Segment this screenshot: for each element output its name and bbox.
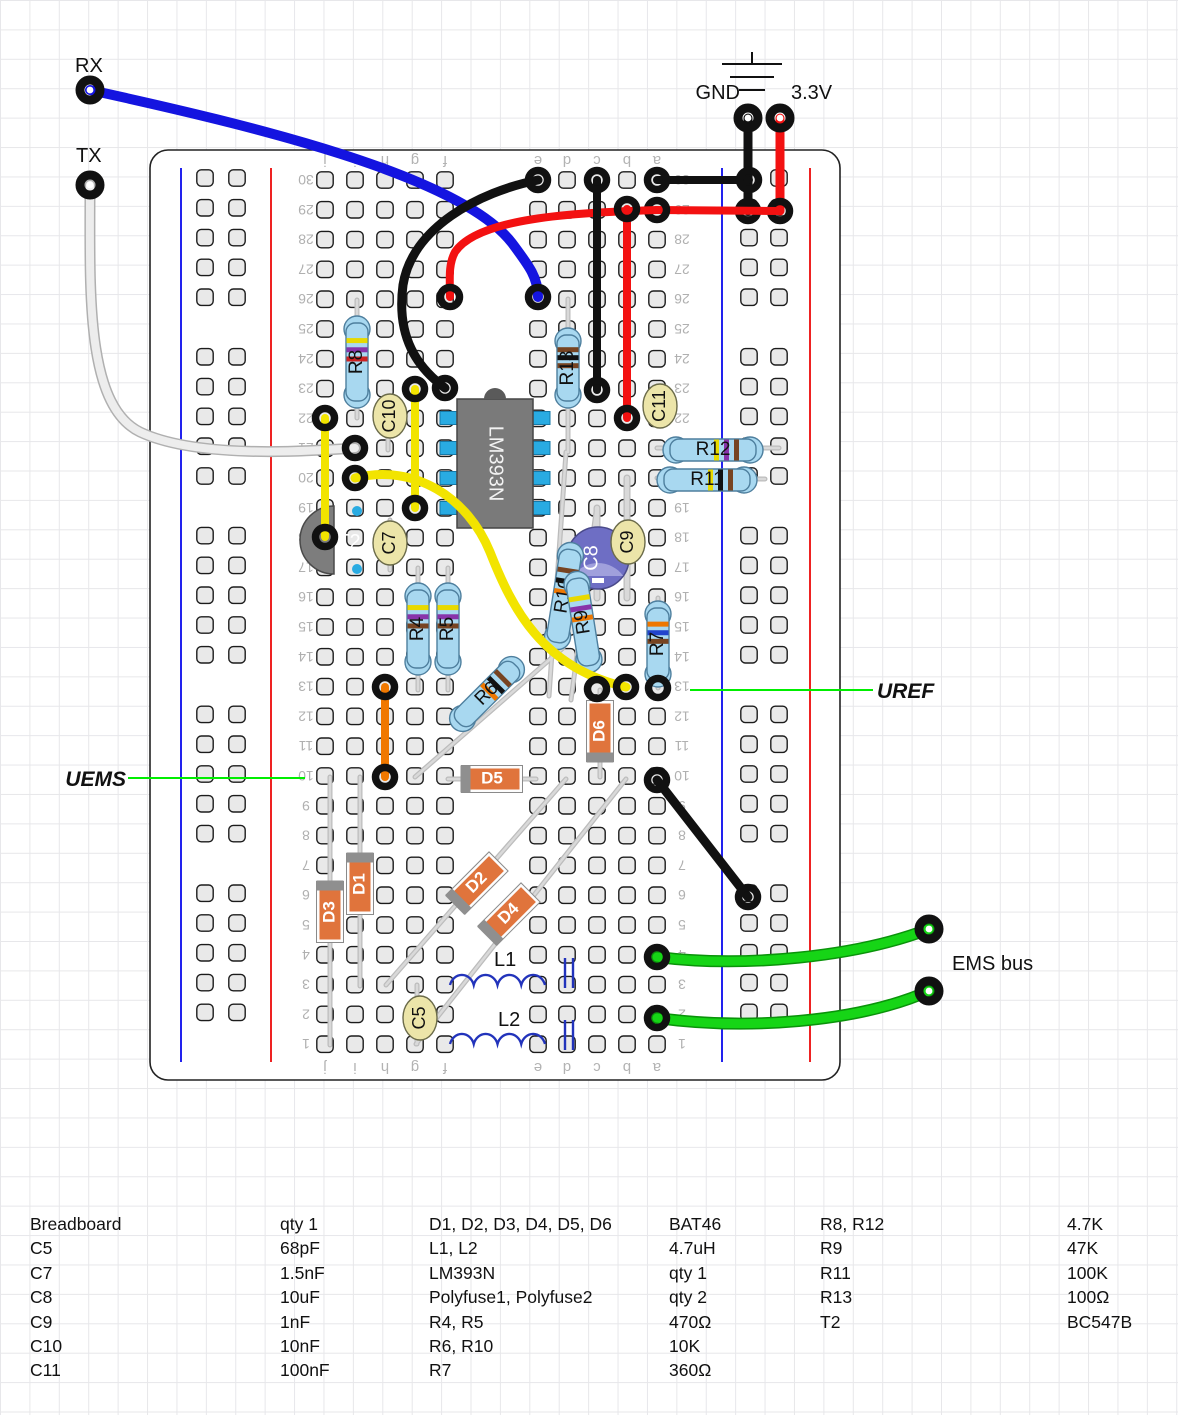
breadboard-hole <box>437 559 453 575</box>
breadboard-hole <box>771 974 787 990</box>
breadboard-hole <box>197 408 213 424</box>
breadboard-hole <box>317 649 333 665</box>
breadboard-hole <box>589 1006 605 1022</box>
breadboard-hole <box>559 172 575 188</box>
component-D1[interactable]: D1 <box>347 853 374 915</box>
row-number: 8 <box>302 828 310 844</box>
component-D3[interactable]: D3 <box>317 881 344 943</box>
gnd-label: GND <box>696 82 740 104</box>
breadboard-hole <box>377 1036 393 1052</box>
breadboard-hole <box>197 468 213 484</box>
breadboard-hole <box>649 351 665 367</box>
breadboard-hole <box>771 915 787 931</box>
row-number: 8 <box>678 828 686 844</box>
breadboard-hole <box>197 825 213 841</box>
breadboard-hole <box>530 529 546 545</box>
resistor-label: R13 <box>557 351 578 386</box>
breadboard-hole <box>559 827 575 843</box>
resistor-band <box>347 338 368 343</box>
diode-label: D6 <box>589 720 608 742</box>
cap-label: C11 <box>649 390 669 422</box>
row-number: 17 <box>674 559 690 575</box>
uref-label: UREF <box>877 680 935 703</box>
row-number: 19 <box>674 500 690 516</box>
breadboard-hole <box>197 706 213 722</box>
row-number: 27 <box>674 261 690 277</box>
breadboard-hole <box>197 587 213 603</box>
breadboard-hole <box>530 678 546 694</box>
row-number: 14 <box>298 649 314 665</box>
breadboard-hole <box>530 827 546 843</box>
component-C11[interactable]: C11 <box>643 384 677 428</box>
breadboard-hole <box>649 917 665 933</box>
breadboard-hole <box>437 529 453 545</box>
breadboard-hole <box>317 291 333 307</box>
row-number: 26 <box>674 291 690 307</box>
breadboard-hole <box>377 917 393 933</box>
breadboard-hole <box>589 917 605 933</box>
breadboard-hole <box>229 796 245 812</box>
breadboard-hole <box>559 887 575 903</box>
breadboard-hole <box>317 231 333 247</box>
breadboard-hole <box>229 408 245 424</box>
transistor-pin <box>352 564 362 574</box>
breadboard-hole <box>741 378 757 394</box>
breadboard-hole <box>377 827 393 843</box>
breadboard-hole <box>407 708 423 724</box>
row-number: 3 <box>678 977 686 993</box>
tx-label: TX <box>76 145 102 167</box>
breadboard-hole <box>377 291 393 307</box>
breadboard-hole <box>589 857 605 873</box>
component-R13[interactable]: R13 <box>555 328 581 408</box>
diode-label: D5 <box>481 768 503 787</box>
breadboard-hole <box>197 766 213 782</box>
resistor-label: R9 <box>570 608 595 635</box>
row-number: 9 <box>302 798 310 814</box>
breadboard-hole <box>589 827 605 843</box>
diode-cathode-stripe <box>587 753 614 763</box>
breadboard-hole <box>347 649 363 665</box>
breadboard-hole <box>741 617 757 633</box>
row-number: 1 <box>302 1036 310 1052</box>
breadboard-hole <box>771 527 787 543</box>
breadboard-hole <box>589 976 605 992</box>
breadboard-hole <box>407 559 423 575</box>
breadboard-hole <box>229 200 245 216</box>
row-number: 28 <box>298 232 314 248</box>
breadboard-hole <box>530 231 546 247</box>
breadboard-hole <box>741 825 757 841</box>
breadboard-hole <box>771 736 787 752</box>
row-number: 10 <box>674 768 690 784</box>
row-number: 25 <box>298 321 314 337</box>
breadboard-hole <box>197 647 213 663</box>
row-number: 13 <box>674 679 690 695</box>
row-number: 4 <box>302 947 310 963</box>
row-number: 3 <box>302 977 310 993</box>
breadboard-hole <box>437 172 453 188</box>
resistor-band <box>408 605 429 610</box>
breadboard-hole <box>771 766 787 782</box>
pin-ems2[interactable] <box>919 981 939 1001</box>
breadboard-hole <box>229 974 245 990</box>
breadboard-hole <box>741 259 757 275</box>
breadboard-hole <box>377 321 393 337</box>
breadboard-hole <box>619 887 635 903</box>
column-letter: b <box>623 1059 631 1076</box>
breadboard-hole <box>771 557 787 573</box>
breadboard-hole <box>437 351 453 367</box>
breadboard-hole <box>649 798 665 814</box>
component-R5[interactable]: R5 <box>435 583 461 675</box>
component-R12[interactable]: R12 <box>663 437 763 463</box>
breadboard-hole <box>530 857 546 873</box>
pin-v33[interactable] <box>770 108 790 128</box>
breadboard-hole <box>347 202 363 218</box>
breadboard-hole <box>197 378 213 394</box>
breadboard-hole <box>649 708 665 724</box>
breadboard-hole <box>407 678 423 694</box>
breadboard-hole <box>317 619 333 635</box>
row-number: 15 <box>298 619 314 635</box>
breadboard-hole <box>317 738 333 754</box>
pin-hole <box>926 926 933 933</box>
breadboard-hole <box>619 440 635 456</box>
breadboard-hole <box>407 827 423 843</box>
breadboard-hole <box>197 557 213 573</box>
diode-label: D1 <box>349 873 368 895</box>
breadboard-hole <box>407 529 423 545</box>
pin-tx[interactable] <box>80 175 100 195</box>
breadboard-hole <box>229 527 245 543</box>
row-number: 20 <box>298 470 314 486</box>
breadboard-hole <box>197 974 213 990</box>
breadboard-hole <box>197 945 213 961</box>
breadboard-hole <box>649 738 665 754</box>
component-R7[interactable]: R7 <box>645 601 671 687</box>
breadboard-hole <box>771 796 787 812</box>
breadboard-hole <box>619 947 635 963</box>
row-number: 28 <box>674 232 690 248</box>
component-R8[interactable]: R8 <box>344 316 370 408</box>
row-number: 14 <box>674 649 690 665</box>
breadboard-hole <box>197 617 213 633</box>
resistor-band <box>728 470 733 491</box>
column-letter: c <box>593 152 601 169</box>
ems-bus-label: EMS bus <box>952 953 1033 975</box>
row-number: 12 <box>674 708 690 724</box>
cap-label: C10 <box>379 399 399 432</box>
breadboard-hole <box>530 947 546 963</box>
row-number: 16 <box>674 589 690 605</box>
breadboard-hole <box>347 1006 363 1022</box>
diode-cathode-stripe <box>461 766 471 793</box>
breadboard-hole <box>741 766 757 782</box>
breadboard-hole <box>377 798 393 814</box>
breadboard-hole <box>530 738 546 754</box>
breadboard-hole <box>407 798 423 814</box>
breadboard-hole <box>377 649 393 665</box>
breadboard-hole <box>771 617 787 633</box>
breadboard-hole <box>197 736 213 752</box>
pin-hole <box>745 115 752 122</box>
breadboard-hole <box>530 589 546 605</box>
pin-hole <box>87 87 94 94</box>
column-letter: e <box>534 1059 542 1076</box>
breadboard-hole <box>771 825 787 841</box>
row-number: 24 <box>674 351 690 367</box>
rx-label: RX <box>75 55 103 77</box>
breadboard-hole <box>229 587 245 603</box>
breadboard-hole <box>437 321 453 337</box>
row-number: 23 <box>298 381 314 397</box>
breadboard-hole <box>347 261 363 277</box>
breadboard-hole <box>619 649 635 665</box>
breadboard-hole <box>530 917 546 933</box>
component-R11[interactable]: R11 <box>657 467 757 493</box>
row-number: 10 <box>298 768 314 784</box>
breadboard-hole <box>229 557 245 573</box>
breadboard-hole <box>197 885 213 901</box>
breadboard-hole <box>197 527 213 543</box>
breadboard-hole <box>589 947 605 963</box>
row-number: 24 <box>298 351 314 367</box>
breadboard-hole <box>377 1006 393 1022</box>
cap-label: C7 <box>379 531 399 554</box>
breadboard-hole <box>347 1036 363 1052</box>
breadboard-hole <box>649 827 665 843</box>
breadboard-hole <box>317 172 333 188</box>
breadboard-hole <box>377 202 393 218</box>
cap-label: C9 <box>617 530 637 553</box>
resistor-band <box>648 622 669 627</box>
diode-cathode-stripe <box>347 853 374 863</box>
breadboard-hole <box>347 619 363 635</box>
breadboard-hole <box>649 1036 665 1052</box>
row-number: 25 <box>674 321 690 337</box>
breadboard-hole <box>619 1036 635 1052</box>
breadboard-hole <box>530 1006 546 1022</box>
row-number: 13 <box>298 679 314 695</box>
breadboard-hole <box>197 796 213 812</box>
breadboard-hole <box>649 559 665 575</box>
breadboard-hole <box>197 915 213 931</box>
breadboard-hole <box>317 380 333 396</box>
breadboard-hole <box>377 887 393 903</box>
resistor-label: R8 <box>346 350 367 374</box>
v33-label: 3.3V <box>791 82 833 104</box>
breadboard-hole <box>771 229 787 245</box>
ic-label: LM393N <box>485 426 507 502</box>
component-C5[interactable]: C5 <box>403 996 437 1040</box>
breadboard-hole <box>229 617 245 633</box>
breadboard-hole <box>741 706 757 722</box>
breadboard-hole <box>771 349 787 365</box>
breadboard-hole <box>589 440 605 456</box>
diode-cathode-stripe <box>317 881 344 891</box>
breadboard-hole <box>559 917 575 933</box>
breadboard-hole <box>619 619 635 635</box>
row-number: 6 <box>678 887 686 903</box>
breadboard-hole <box>229 378 245 394</box>
row-number: 7 <box>678 857 686 873</box>
breadboard-hole <box>229 706 245 722</box>
breadboard-hole <box>437 768 453 784</box>
breadboard-hole <box>437 857 453 873</box>
row-number: 27 <box>298 261 314 277</box>
component-C7[interactable]: C7 <box>373 521 407 565</box>
breadboard-hole <box>197 200 213 216</box>
breadboard-hole <box>741 408 757 424</box>
breadboard-hole <box>229 766 245 782</box>
column-letter: c <box>593 1059 601 1076</box>
breadboard-hole <box>229 289 245 305</box>
breadboard-hole <box>771 289 787 305</box>
row-number: 19 <box>298 500 314 516</box>
breadboard-hole <box>229 647 245 663</box>
breadboard-hole <box>741 289 757 305</box>
component-C9[interactable]: C9 <box>611 520 645 564</box>
breadboard-hole <box>197 1004 213 1020</box>
breadboard-hole <box>559 738 575 754</box>
breadboard-hole <box>377 440 393 456</box>
breadboard-hole <box>771 408 787 424</box>
breadboard-hole <box>649 291 665 307</box>
breadboard-hole <box>530 768 546 784</box>
pin-ems1[interactable] <box>919 919 939 939</box>
breadboard-hole <box>530 321 546 337</box>
breadboard-hole <box>741 915 757 931</box>
breadboard-hole <box>741 527 757 543</box>
breadboard-hole <box>589 470 605 486</box>
breadboard-hole <box>377 351 393 367</box>
row-number: 29 <box>298 202 314 218</box>
breadboard-hole <box>771 706 787 722</box>
breadboard-hole <box>347 172 363 188</box>
component-D5[interactable]: D5 <box>461 766 523 793</box>
resistor-label: R4 <box>407 616 428 641</box>
breadboard-hole <box>407 887 423 903</box>
breadboard-hole <box>619 172 635 188</box>
pin-hole <box>777 115 784 122</box>
breadboard-hole <box>741 349 757 365</box>
uems-label: UEMS <box>65 768 126 791</box>
wire-stroke <box>657 210 780 211</box>
inductor-label: L2 <box>498 1009 520 1031</box>
pin-gnd[interactable] <box>738 108 758 128</box>
diode-label: D3 <box>319 901 338 923</box>
breadboard-hole <box>619 857 635 873</box>
cap-label: C5 <box>409 1006 429 1029</box>
breadboard-hole <box>317 202 333 218</box>
breadboard-hole <box>589 410 605 426</box>
breadboard-hole <box>317 261 333 277</box>
row-number: 2 <box>302 1006 310 1022</box>
breadboard-hole <box>197 349 213 365</box>
breadboard-hole <box>530 351 546 367</box>
transistor-label: T2 <box>337 531 360 553</box>
row-number: 7 <box>302 857 310 873</box>
breadboard-hole <box>437 798 453 814</box>
breadboard-hole <box>437 827 453 843</box>
component-R4[interactable]: R4 <box>405 583 431 675</box>
breadboard-hole <box>619 738 635 754</box>
breadboard-hole <box>377 500 393 516</box>
row-number: 16 <box>298 589 314 605</box>
breadboard-hole <box>377 589 393 605</box>
breadboard-hole <box>771 885 787 901</box>
component-D6[interactable]: D6 <box>587 701 614 763</box>
breadboard-hole <box>229 1004 245 1020</box>
row-number: 6 <box>302 887 310 903</box>
breadboard-hole <box>741 796 757 812</box>
row-number: 1 <box>678 1036 686 1052</box>
breadboard-hole <box>347 678 363 694</box>
transistor-pin <box>352 506 362 516</box>
breadboard-hole <box>771 468 787 484</box>
breadboard-hole <box>771 259 787 275</box>
breadboard-hole <box>229 915 245 931</box>
component-C10[interactable]: C10 <box>373 394 407 438</box>
breadboard-hole <box>229 825 245 841</box>
column-letter: d <box>563 1059 571 1076</box>
row-number: 11 <box>675 738 690 754</box>
breadboard-hole <box>771 378 787 394</box>
breadboard-hole <box>619 976 635 992</box>
breadboard-hole <box>437 678 453 694</box>
breadboard-hole <box>530 380 546 396</box>
row-number: 23 <box>674 381 690 397</box>
breadboard-hole <box>377 947 393 963</box>
breadboard-hole <box>407 291 423 307</box>
row-number: 5 <box>678 917 686 933</box>
breadboard-hole <box>530 559 546 575</box>
column-letter: b <box>623 152 631 169</box>
breadboard-hole <box>317 589 333 605</box>
breadboard-hole <box>649 231 665 247</box>
breadboard-hole <box>347 738 363 754</box>
resistor-band <box>438 605 459 610</box>
breadboard-hole <box>530 708 546 724</box>
breadboard-hole <box>771 647 787 663</box>
breadboard-hole <box>407 202 423 218</box>
breadboard-hole <box>407 917 423 933</box>
breadboard-hole <box>741 647 757 663</box>
breadboard-hole <box>649 321 665 337</box>
breadboard-hole <box>197 229 213 245</box>
breadboard-hole <box>559 798 575 814</box>
resistor-label: R11 <box>690 469 723 490</box>
breadboard-hole <box>559 261 575 277</box>
column-letter: i <box>353 1059 356 1076</box>
breadboard-hole <box>437 947 453 963</box>
breadboard-hole <box>741 557 757 573</box>
pin-rx[interactable] <box>80 80 100 100</box>
breadboard-hole <box>407 857 423 873</box>
breadboard-hole <box>197 289 213 305</box>
column-letter: h <box>381 1059 389 1076</box>
resistor-label: R5 <box>437 617 458 641</box>
column-letter: a <box>652 1059 661 1076</box>
breadboard-hole <box>649 529 665 545</box>
breadboard-diagram: 1122334455667788991010111112121313141415… <box>0 0 1178 1415</box>
breadboard-hole <box>347 708 363 724</box>
breadboard-hole <box>619 827 635 843</box>
breadboard-hole <box>197 259 213 275</box>
inductor-label: L1 <box>494 949 516 971</box>
breadboard-hole <box>377 857 393 873</box>
